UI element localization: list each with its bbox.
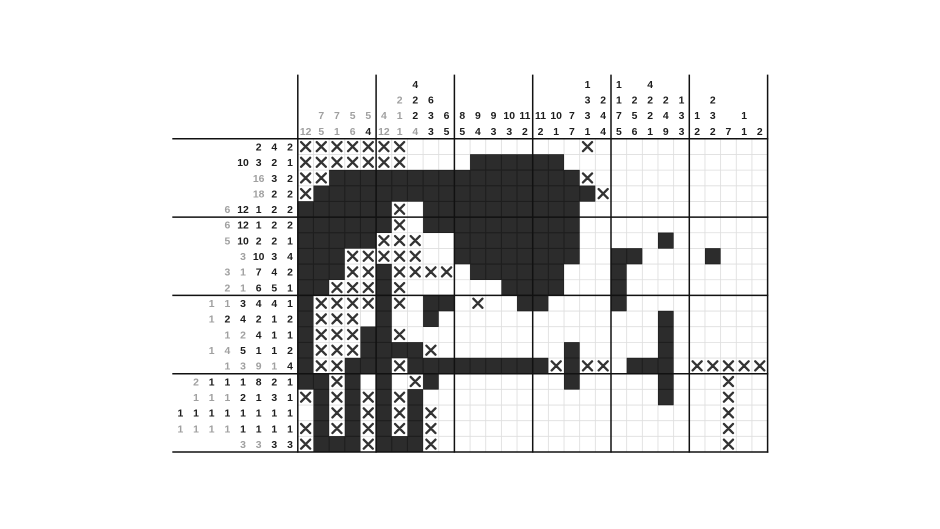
svg-text:10: 10 bbox=[503, 111, 515, 122]
svg-text:3: 3 bbox=[271, 440, 277, 451]
svg-text:1: 1 bbox=[397, 127, 403, 138]
svg-text:1: 1 bbox=[224, 377, 230, 388]
svg-text:2: 2 bbox=[412, 95, 418, 106]
svg-text:2: 2 bbox=[224, 283, 230, 294]
svg-text:3: 3 bbox=[256, 158, 262, 169]
svg-text:6: 6 bbox=[632, 127, 638, 138]
svg-text:1: 1 bbox=[271, 315, 277, 326]
svg-text:1: 1 bbox=[256, 409, 262, 420]
svg-text:7: 7 bbox=[318, 111, 324, 122]
svg-text:10: 10 bbox=[253, 252, 265, 263]
svg-text:7: 7 bbox=[569, 111, 575, 122]
svg-text:1: 1 bbox=[177, 424, 183, 435]
svg-text:10: 10 bbox=[237, 236, 249, 247]
svg-text:4: 4 bbox=[412, 127, 418, 138]
svg-text:2: 2 bbox=[240, 393, 246, 404]
svg-text:3: 3 bbox=[491, 127, 497, 138]
svg-text:9: 9 bbox=[475, 111, 481, 122]
svg-text:1: 1 bbox=[209, 424, 215, 435]
svg-text:5: 5 bbox=[444, 127, 450, 138]
svg-text:2: 2 bbox=[271, 236, 277, 247]
svg-text:2: 2 bbox=[256, 315, 262, 326]
svg-text:1: 1 bbox=[741, 111, 747, 122]
svg-text:2: 2 bbox=[271, 189, 277, 200]
svg-text:1: 1 bbox=[616, 80, 622, 91]
svg-text:4: 4 bbox=[365, 127, 371, 138]
svg-text:1: 1 bbox=[240, 424, 246, 435]
svg-text:2: 2 bbox=[600, 95, 606, 106]
svg-text:3: 3 bbox=[428, 111, 434, 122]
svg-text:1: 1 bbox=[240, 377, 246, 388]
svg-text:4: 4 bbox=[256, 330, 262, 341]
svg-text:3: 3 bbox=[428, 127, 434, 138]
svg-text:1: 1 bbox=[271, 409, 277, 420]
svg-text:6: 6 bbox=[256, 283, 262, 294]
svg-text:6: 6 bbox=[224, 205, 230, 216]
svg-text:16: 16 bbox=[253, 174, 265, 185]
svg-text:2: 2 bbox=[256, 236, 262, 247]
svg-text:5: 5 bbox=[632, 111, 638, 122]
svg-text:4: 4 bbox=[600, 127, 606, 138]
svg-text:1: 1 bbox=[397, 111, 403, 122]
svg-text:9: 9 bbox=[256, 362, 262, 373]
svg-text:2: 2 bbox=[271, 221, 277, 232]
svg-text:1: 1 bbox=[287, 424, 293, 435]
svg-text:6: 6 bbox=[350, 127, 356, 138]
svg-text:6: 6 bbox=[444, 111, 450, 122]
svg-text:11: 11 bbox=[535, 111, 546, 122]
svg-text:1: 1 bbox=[240, 268, 246, 279]
svg-text:1: 1 bbox=[334, 127, 340, 138]
svg-text:9: 9 bbox=[491, 111, 497, 122]
svg-text:4: 4 bbox=[600, 111, 606, 122]
svg-text:3: 3 bbox=[585, 111, 591, 122]
svg-text:2: 2 bbox=[632, 95, 638, 106]
svg-text:1: 1 bbox=[209, 346, 215, 357]
svg-text:3: 3 bbox=[240, 299, 246, 310]
svg-text:4: 4 bbox=[256, 299, 262, 310]
svg-text:7: 7 bbox=[334, 111, 340, 122]
svg-text:2: 2 bbox=[193, 377, 199, 388]
svg-text:4: 4 bbox=[271, 299, 277, 310]
svg-text:1: 1 bbox=[240, 409, 246, 420]
svg-text:3: 3 bbox=[679, 127, 685, 138]
svg-text:2: 2 bbox=[694, 127, 700, 138]
svg-text:1: 1 bbox=[224, 424, 230, 435]
svg-text:1: 1 bbox=[585, 80, 591, 91]
svg-text:5: 5 bbox=[459, 127, 465, 138]
svg-text:4: 4 bbox=[240, 315, 246, 326]
svg-text:12: 12 bbox=[378, 127, 390, 138]
svg-text:7: 7 bbox=[616, 111, 622, 122]
svg-text:3: 3 bbox=[287, 440, 293, 451]
svg-text:1: 1 bbox=[287, 377, 293, 388]
svg-text:5: 5 bbox=[224, 236, 230, 247]
svg-text:5: 5 bbox=[365, 111, 371, 122]
svg-text:1: 1 bbox=[193, 409, 199, 420]
svg-text:4: 4 bbox=[271, 268, 277, 279]
svg-text:3: 3 bbox=[585, 95, 591, 106]
svg-text:3: 3 bbox=[240, 362, 246, 373]
svg-text:1: 1 bbox=[741, 127, 747, 138]
svg-text:9: 9 bbox=[663, 127, 669, 138]
svg-text:4: 4 bbox=[663, 111, 669, 122]
svg-text:4: 4 bbox=[287, 252, 293, 263]
svg-text:2: 2 bbox=[287, 142, 293, 153]
svg-text:1: 1 bbox=[287, 299, 293, 310]
svg-text:3: 3 bbox=[271, 252, 277, 263]
svg-text:8: 8 bbox=[256, 377, 262, 388]
svg-text:2: 2 bbox=[412, 111, 418, 122]
svg-text:3: 3 bbox=[240, 252, 246, 263]
svg-text:1: 1 bbox=[177, 409, 183, 420]
svg-text:3: 3 bbox=[240, 440, 246, 451]
svg-text:1: 1 bbox=[585, 127, 591, 138]
svg-text:5: 5 bbox=[616, 127, 622, 138]
svg-text:1: 1 bbox=[287, 158, 293, 169]
svg-text:7: 7 bbox=[256, 268, 262, 279]
svg-text:1: 1 bbox=[209, 409, 215, 420]
svg-text:8: 8 bbox=[459, 111, 465, 122]
svg-text:2: 2 bbox=[647, 111, 653, 122]
svg-text:4: 4 bbox=[287, 362, 293, 373]
svg-text:2: 2 bbox=[287, 205, 293, 216]
svg-text:1: 1 bbox=[271, 346, 277, 357]
svg-text:1: 1 bbox=[287, 236, 293, 247]
svg-text:2: 2 bbox=[287, 315, 293, 326]
svg-text:3: 3 bbox=[271, 174, 277, 185]
svg-text:18: 18 bbox=[253, 189, 265, 200]
svg-text:1: 1 bbox=[553, 127, 559, 138]
svg-text:5: 5 bbox=[350, 111, 356, 122]
svg-text:2: 2 bbox=[287, 221, 293, 232]
svg-text:4: 4 bbox=[381, 111, 387, 122]
svg-text:4: 4 bbox=[271, 142, 277, 153]
svg-text:7: 7 bbox=[569, 127, 575, 138]
svg-text:2: 2 bbox=[271, 205, 277, 216]
svg-text:2: 2 bbox=[287, 174, 293, 185]
svg-text:11: 11 bbox=[519, 111, 530, 122]
svg-text:1: 1 bbox=[256, 221, 262, 232]
svg-text:6: 6 bbox=[428, 95, 434, 106]
svg-text:1: 1 bbox=[647, 127, 653, 138]
svg-text:12: 12 bbox=[237, 205, 249, 216]
svg-text:1: 1 bbox=[209, 377, 215, 388]
svg-text:1: 1 bbox=[224, 362, 230, 373]
svg-text:1: 1 bbox=[256, 205, 262, 216]
svg-text:4: 4 bbox=[412, 80, 418, 91]
svg-text:1: 1 bbox=[679, 95, 685, 106]
svg-text:3: 3 bbox=[224, 268, 230, 279]
svg-text:6: 6 bbox=[224, 221, 230, 232]
svg-text:1: 1 bbox=[256, 393, 262, 404]
svg-text:1: 1 bbox=[271, 330, 277, 341]
svg-text:1: 1 bbox=[224, 299, 230, 310]
svg-text:2: 2 bbox=[271, 377, 277, 388]
svg-text:1: 1 bbox=[287, 409, 293, 420]
svg-text:1: 1 bbox=[287, 393, 293, 404]
svg-text:10: 10 bbox=[550, 111, 562, 122]
svg-text:1: 1 bbox=[224, 330, 230, 341]
svg-text:5: 5 bbox=[271, 283, 277, 294]
svg-text:2: 2 bbox=[757, 127, 763, 138]
svg-text:4: 4 bbox=[475, 127, 481, 138]
svg-text:2: 2 bbox=[287, 268, 293, 279]
svg-text:1: 1 bbox=[287, 283, 293, 294]
svg-text:4: 4 bbox=[647, 80, 653, 91]
svg-text:1: 1 bbox=[209, 315, 215, 326]
svg-text:5: 5 bbox=[318, 127, 324, 138]
svg-text:2: 2 bbox=[224, 315, 230, 326]
svg-text:10: 10 bbox=[237, 158, 249, 169]
svg-text:5: 5 bbox=[240, 346, 246, 357]
svg-text:1: 1 bbox=[616, 95, 622, 106]
svg-text:2: 2 bbox=[710, 127, 716, 138]
svg-text:1: 1 bbox=[271, 362, 277, 373]
svg-text:1: 1 bbox=[224, 409, 230, 420]
svg-text:1: 1 bbox=[193, 424, 199, 435]
svg-text:2: 2 bbox=[538, 127, 544, 138]
svg-text:1: 1 bbox=[256, 424, 262, 435]
svg-text:2: 2 bbox=[647, 95, 653, 106]
svg-text:1: 1 bbox=[209, 299, 215, 310]
svg-text:1: 1 bbox=[224, 393, 230, 404]
svg-text:2: 2 bbox=[397, 95, 403, 106]
svg-text:1: 1 bbox=[256, 346, 262, 357]
svg-text:3: 3 bbox=[256, 440, 262, 451]
svg-text:2: 2 bbox=[287, 346, 293, 357]
svg-text:3: 3 bbox=[506, 127, 512, 138]
svg-text:1: 1 bbox=[240, 283, 246, 294]
svg-text:2: 2 bbox=[240, 330, 246, 341]
svg-text:2: 2 bbox=[256, 142, 262, 153]
svg-text:2: 2 bbox=[287, 189, 293, 200]
svg-text:12: 12 bbox=[300, 127, 312, 138]
svg-text:2: 2 bbox=[271, 158, 277, 169]
svg-text:12: 12 bbox=[237, 221, 249, 232]
svg-text:3: 3 bbox=[271, 393, 277, 404]
svg-text:1: 1 bbox=[271, 424, 277, 435]
svg-text:1: 1 bbox=[287, 330, 293, 341]
svg-text:3: 3 bbox=[710, 111, 716, 122]
svg-text:1: 1 bbox=[209, 393, 215, 404]
svg-text:2: 2 bbox=[710, 95, 716, 106]
svg-text:7: 7 bbox=[726, 127, 732, 138]
svg-text:1: 1 bbox=[694, 111, 700, 122]
svg-text:1: 1 bbox=[193, 393, 199, 404]
svg-text:4: 4 bbox=[224, 346, 230, 357]
svg-text:2: 2 bbox=[522, 127, 528, 138]
svg-text:3: 3 bbox=[679, 111, 685, 122]
svg-text:2: 2 bbox=[663, 95, 669, 106]
